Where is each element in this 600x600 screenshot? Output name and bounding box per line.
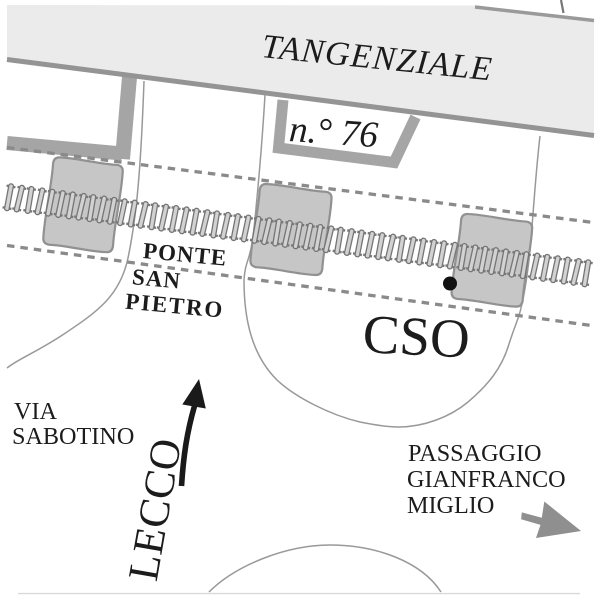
svg-text:MIGLIO: MIGLIO	[407, 492, 494, 519]
svg-text:SABOTINO: SABOTINO	[12, 423, 134, 450]
svg-text:PASSAGGIO: PASSAGGIO	[408, 440, 542, 467]
svg-text:CSO: CSO	[361, 303, 471, 370]
svg-text:VIA: VIA	[14, 398, 58, 425]
svg-text:GIANFRANCO: GIANFRANCO	[407, 466, 566, 493]
svg-text:n.° 76: n.° 76	[288, 109, 380, 156]
